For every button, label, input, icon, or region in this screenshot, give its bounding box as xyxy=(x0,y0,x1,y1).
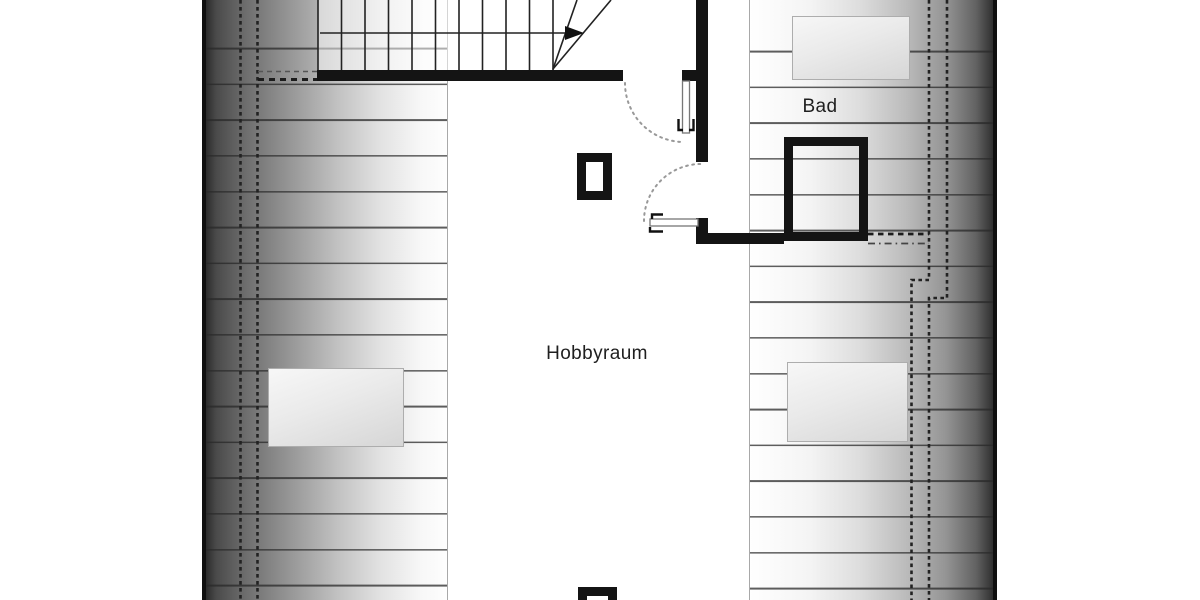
door-leaf-top xyxy=(683,81,690,133)
stair-direction-arrow-icon xyxy=(565,26,584,40)
door-leaf-left xyxy=(650,219,698,226)
plan-linework xyxy=(0,0,1200,600)
stair-winder-treads xyxy=(553,0,611,69)
door-arc-top xyxy=(625,83,684,142)
height-line-right-pair xyxy=(912,0,948,600)
floor-plan-attic: Bad Hobbyraum xyxy=(0,0,1200,600)
door-arc-left xyxy=(644,164,701,221)
height-line-left-pair xyxy=(241,0,258,600)
stair-treads xyxy=(318,0,553,70)
